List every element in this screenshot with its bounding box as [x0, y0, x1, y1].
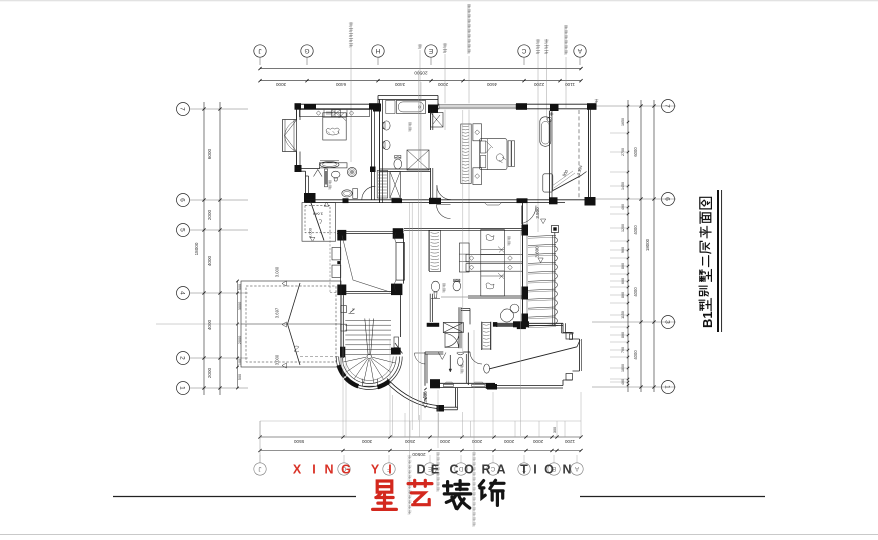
svg-text:G: G	[341, 463, 351, 477]
svg-text:400: 400	[621, 204, 625, 210]
svg-text:5: 5	[179, 228, 186, 232]
svg-text:1450: 1450	[621, 182, 625, 190]
svg-text:E: E	[428, 47, 433, 54]
svg-text:N: N	[562, 463, 571, 477]
svg-text:J: J	[258, 47, 261, 54]
svg-text:2000: 2000	[207, 367, 212, 378]
svg-text:D: D	[458, 465, 463, 472]
svg-text:4000: 4000	[633, 350, 638, 360]
svg-text:X: X	[293, 463, 302, 477]
svg-text:I: I	[312, 463, 315, 477]
svg-text:3000: 3000	[238, 302, 242, 310]
svg-text:4000: 4000	[207, 255, 212, 266]
svg-text:H: H	[375, 47, 380, 54]
svg-text:600: 600	[621, 278, 625, 284]
svg-text:Y: Y	[371, 463, 380, 477]
svg-text:O: O	[544, 463, 554, 477]
svg-text:2700: 2700	[621, 148, 625, 156]
svg-text:6000: 6000	[207, 148, 212, 159]
svg-text:6000: 6000	[633, 147, 638, 157]
svg-text:500: 500	[238, 284, 242, 290]
svg-text:B1: B1	[700, 311, 715, 328]
svg-text:3.000: 3.000	[308, 227, 313, 238]
svg-text:2000: 2000	[238, 336, 242, 344]
svg-text:800: 800	[621, 292, 625, 298]
svg-text:2000: 2000	[503, 439, 514, 444]
svg-text:6400: 6400	[335, 82, 346, 87]
svg-text:E: E	[431, 463, 439, 477]
svg-text:T: T	[520, 463, 528, 477]
svg-text:1800: 1800	[621, 364, 625, 372]
svg-text:700: 700	[621, 347, 625, 353]
svg-text:300: 300	[553, 427, 557, 433]
svg-text:J: J	[258, 465, 261, 472]
svg-text:6: 6	[179, 198, 186, 202]
svg-text:800: 800	[621, 263, 625, 269]
svg-text:18000: 18000	[194, 242, 199, 255]
svg-text:3.600: 3.600	[535, 246, 540, 258]
svg-text:500: 500	[238, 374, 242, 380]
svg-text:I: I	[533, 463, 536, 477]
svg-text:D: D	[416, 463, 425, 477]
svg-text:18000: 18000	[645, 238, 650, 251]
svg-text:900: 900	[621, 247, 625, 253]
svg-text:1200: 1200	[564, 439, 575, 444]
svg-text:3.500: 3.500	[423, 391, 428, 403]
svg-text:4600: 4600	[486, 82, 497, 87]
svg-text:3000: 3000	[275, 82, 286, 87]
svg-text:1200: 1200	[621, 224, 625, 232]
svg-text:800: 800	[621, 332, 625, 338]
svg-text:7: 7	[179, 107, 186, 111]
svg-text:4000: 4000	[633, 225, 638, 235]
svg-text:4000: 4000	[207, 319, 212, 330]
svg-text:20500: 20500	[412, 451, 426, 457]
svg-text:A: A	[496, 463, 505, 477]
svg-text:2200: 2200	[533, 82, 544, 87]
svg-text:2000: 2000	[207, 209, 212, 220]
svg-text:1650: 1650	[621, 118, 625, 126]
svg-text:20500: 20500	[414, 69, 428, 75]
svg-text:3000: 3000	[361, 439, 372, 444]
svg-text:3.649: 3.649	[312, 212, 323, 217]
svg-text:C: C	[521, 47, 526, 54]
svg-text:400: 400	[621, 379, 625, 385]
svg-text:A: A	[577, 47, 582, 54]
svg-text:3.000: 3.000	[275, 354, 280, 365]
svg-text:R: R	[481, 463, 490, 477]
svg-text:1: 1	[179, 386, 186, 390]
svg-text:2000: 2000	[439, 439, 450, 444]
svg-text:4000: 4000	[633, 287, 638, 297]
svg-text:C: C	[490, 465, 495, 472]
svg-text:100: 100	[238, 359, 242, 365]
svg-text:O: O	[464, 463, 474, 477]
svg-text:3.000: 3.000	[275, 266, 280, 277]
svg-text:1150: 1150	[621, 311, 625, 319]
svg-text:3400: 3400	[394, 82, 405, 87]
svg-text:2: 2	[179, 356, 186, 360]
svg-text:G: G	[304, 47, 309, 54]
svg-text:2500: 2500	[404, 439, 415, 444]
svg-text:I: I	[388, 463, 391, 477]
svg-text:2000: 2000	[471, 439, 482, 444]
svg-text:2000: 2000	[532, 439, 543, 444]
svg-text:4: 4	[179, 291, 186, 295]
svg-text:C: C	[449, 463, 458, 477]
svg-text:5500: 5500	[293, 439, 304, 444]
svg-text:N: N	[324, 463, 333, 477]
svg-text:3.697: 3.697	[275, 307, 280, 318]
svg-text:2000: 2000	[437, 82, 448, 87]
